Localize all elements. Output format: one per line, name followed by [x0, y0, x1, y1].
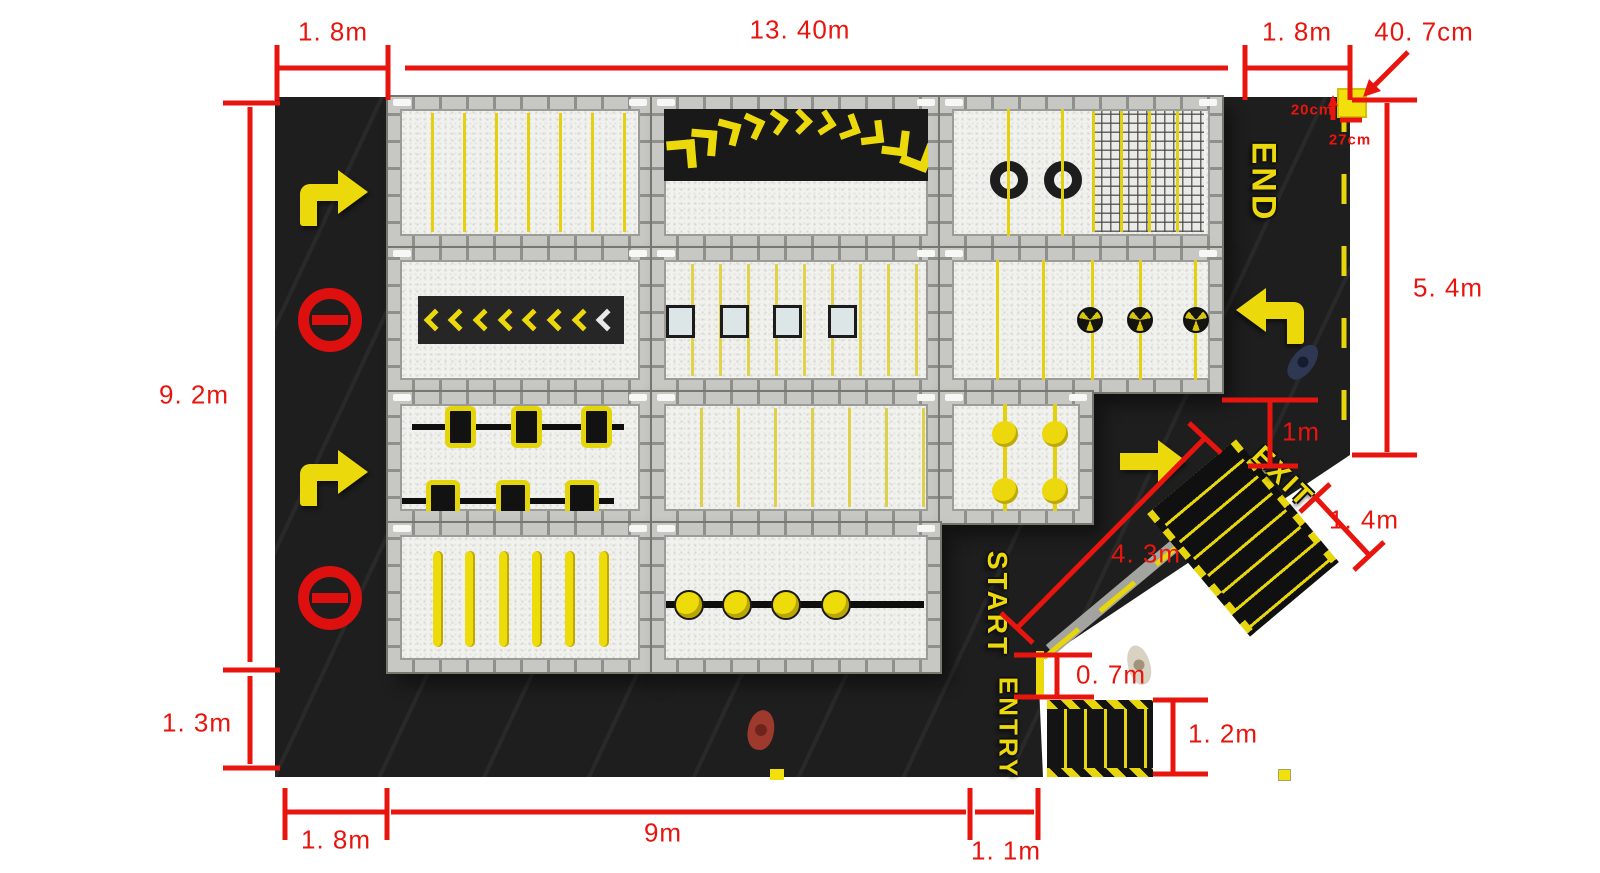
no-entry-icon — [298, 566, 362, 630]
swing-ball — [821, 590, 851, 620]
zone-dot-pods — [940, 392, 1092, 523]
dimension-label: 0. 7m — [1076, 660, 1146, 691]
dimension-label: 5. 4m — [1413, 273, 1483, 304]
zone-swing-balls — [652, 523, 940, 672]
square-step — [720, 305, 749, 338]
dimension-label: 1. 4m — [1329, 505, 1399, 536]
zone-lanes-narrow — [652, 392, 940, 523]
swing-ball — [771, 590, 801, 620]
square-step — [828, 305, 857, 338]
dimension-label: 1. 1m — [971, 836, 1041, 867]
start-platform-edge-marking — [1036, 651, 1044, 697]
dimension-label: 1. 2m — [1188, 719, 1258, 750]
no-entry-icon — [298, 288, 362, 352]
jump-pod — [992, 421, 1018, 447]
swing-ball — [674, 590, 704, 620]
dimension-label: 9. 2m — [159, 380, 229, 411]
balance-beam — [418, 296, 624, 344]
cargo-net — [1092, 111, 1204, 232]
dimension-label: 4. 3m — [1111, 539, 1181, 570]
corner-block-marker — [1337, 88, 1367, 118]
dimension-label: 9m — [644, 818, 682, 849]
step-block — [511, 406, 542, 448]
dimension-label: 27cm — [1329, 132, 1371, 149]
dimension-label: 1. 3m — [162, 708, 232, 739]
lane-strap — [499, 551, 509, 647]
spinner-disc — [1127, 307, 1153, 333]
swing-ball — [722, 590, 752, 620]
dimension-label: 1. 8m — [1262, 17, 1332, 48]
zone-step-blocks — [388, 392, 652, 523]
entry-stairs — [1047, 700, 1153, 777]
square-step — [773, 305, 802, 338]
straight-right-arrow-icon — [1120, 440, 1186, 482]
dimension-label: 13. 40m — [750, 15, 851, 46]
zone-balance-beam — [388, 248, 652, 392]
square-step — [666, 305, 695, 338]
zone-rings-and-net — [940, 97, 1222, 248]
zone-trampoline-lanes — [388, 97, 652, 248]
end-label: END — [1244, 142, 1283, 223]
turn-right-arrow-icon — [296, 438, 370, 506]
lane-strap — [532, 551, 542, 647]
lane-strap — [565, 551, 575, 647]
start-label: START — [981, 551, 1013, 657]
step-block — [581, 406, 612, 448]
step-block — [445, 406, 476, 448]
jump-pod — [1042, 421, 1068, 447]
zone-spinner-discs — [940, 248, 1222, 392]
lane-strap — [599, 551, 609, 647]
dimension-label: 40. 7cm — [1374, 17, 1474, 48]
lane-strap — [465, 551, 475, 647]
dimension-label: 1. 8m — [298, 17, 368, 48]
dimension-label: 1m — [1282, 417, 1320, 448]
floor-marker — [1278, 769, 1291, 781]
lane-strap — [433, 551, 443, 647]
dimension-label: 20cm — [1291, 102, 1333, 119]
entry-label: ENTRY — [993, 677, 1024, 779]
jump-pod — [1042, 478, 1068, 504]
zone-square-steps — [652, 248, 940, 392]
turn-left-arrow-icon — [1234, 276, 1308, 344]
chevron-arc-band — [664, 109, 928, 181]
jump-pod — [992, 478, 1018, 504]
turn-right-arrow-icon — [296, 158, 370, 226]
zone-wide-lanes — [388, 523, 652, 672]
spinner-disc — [1183, 307, 1209, 333]
spinner-disc — [1077, 307, 1103, 333]
floor-marker — [770, 769, 784, 780]
dimension-label: 1. 8m — [301, 825, 371, 856]
zone-chevron-arc — [652, 97, 940, 248]
